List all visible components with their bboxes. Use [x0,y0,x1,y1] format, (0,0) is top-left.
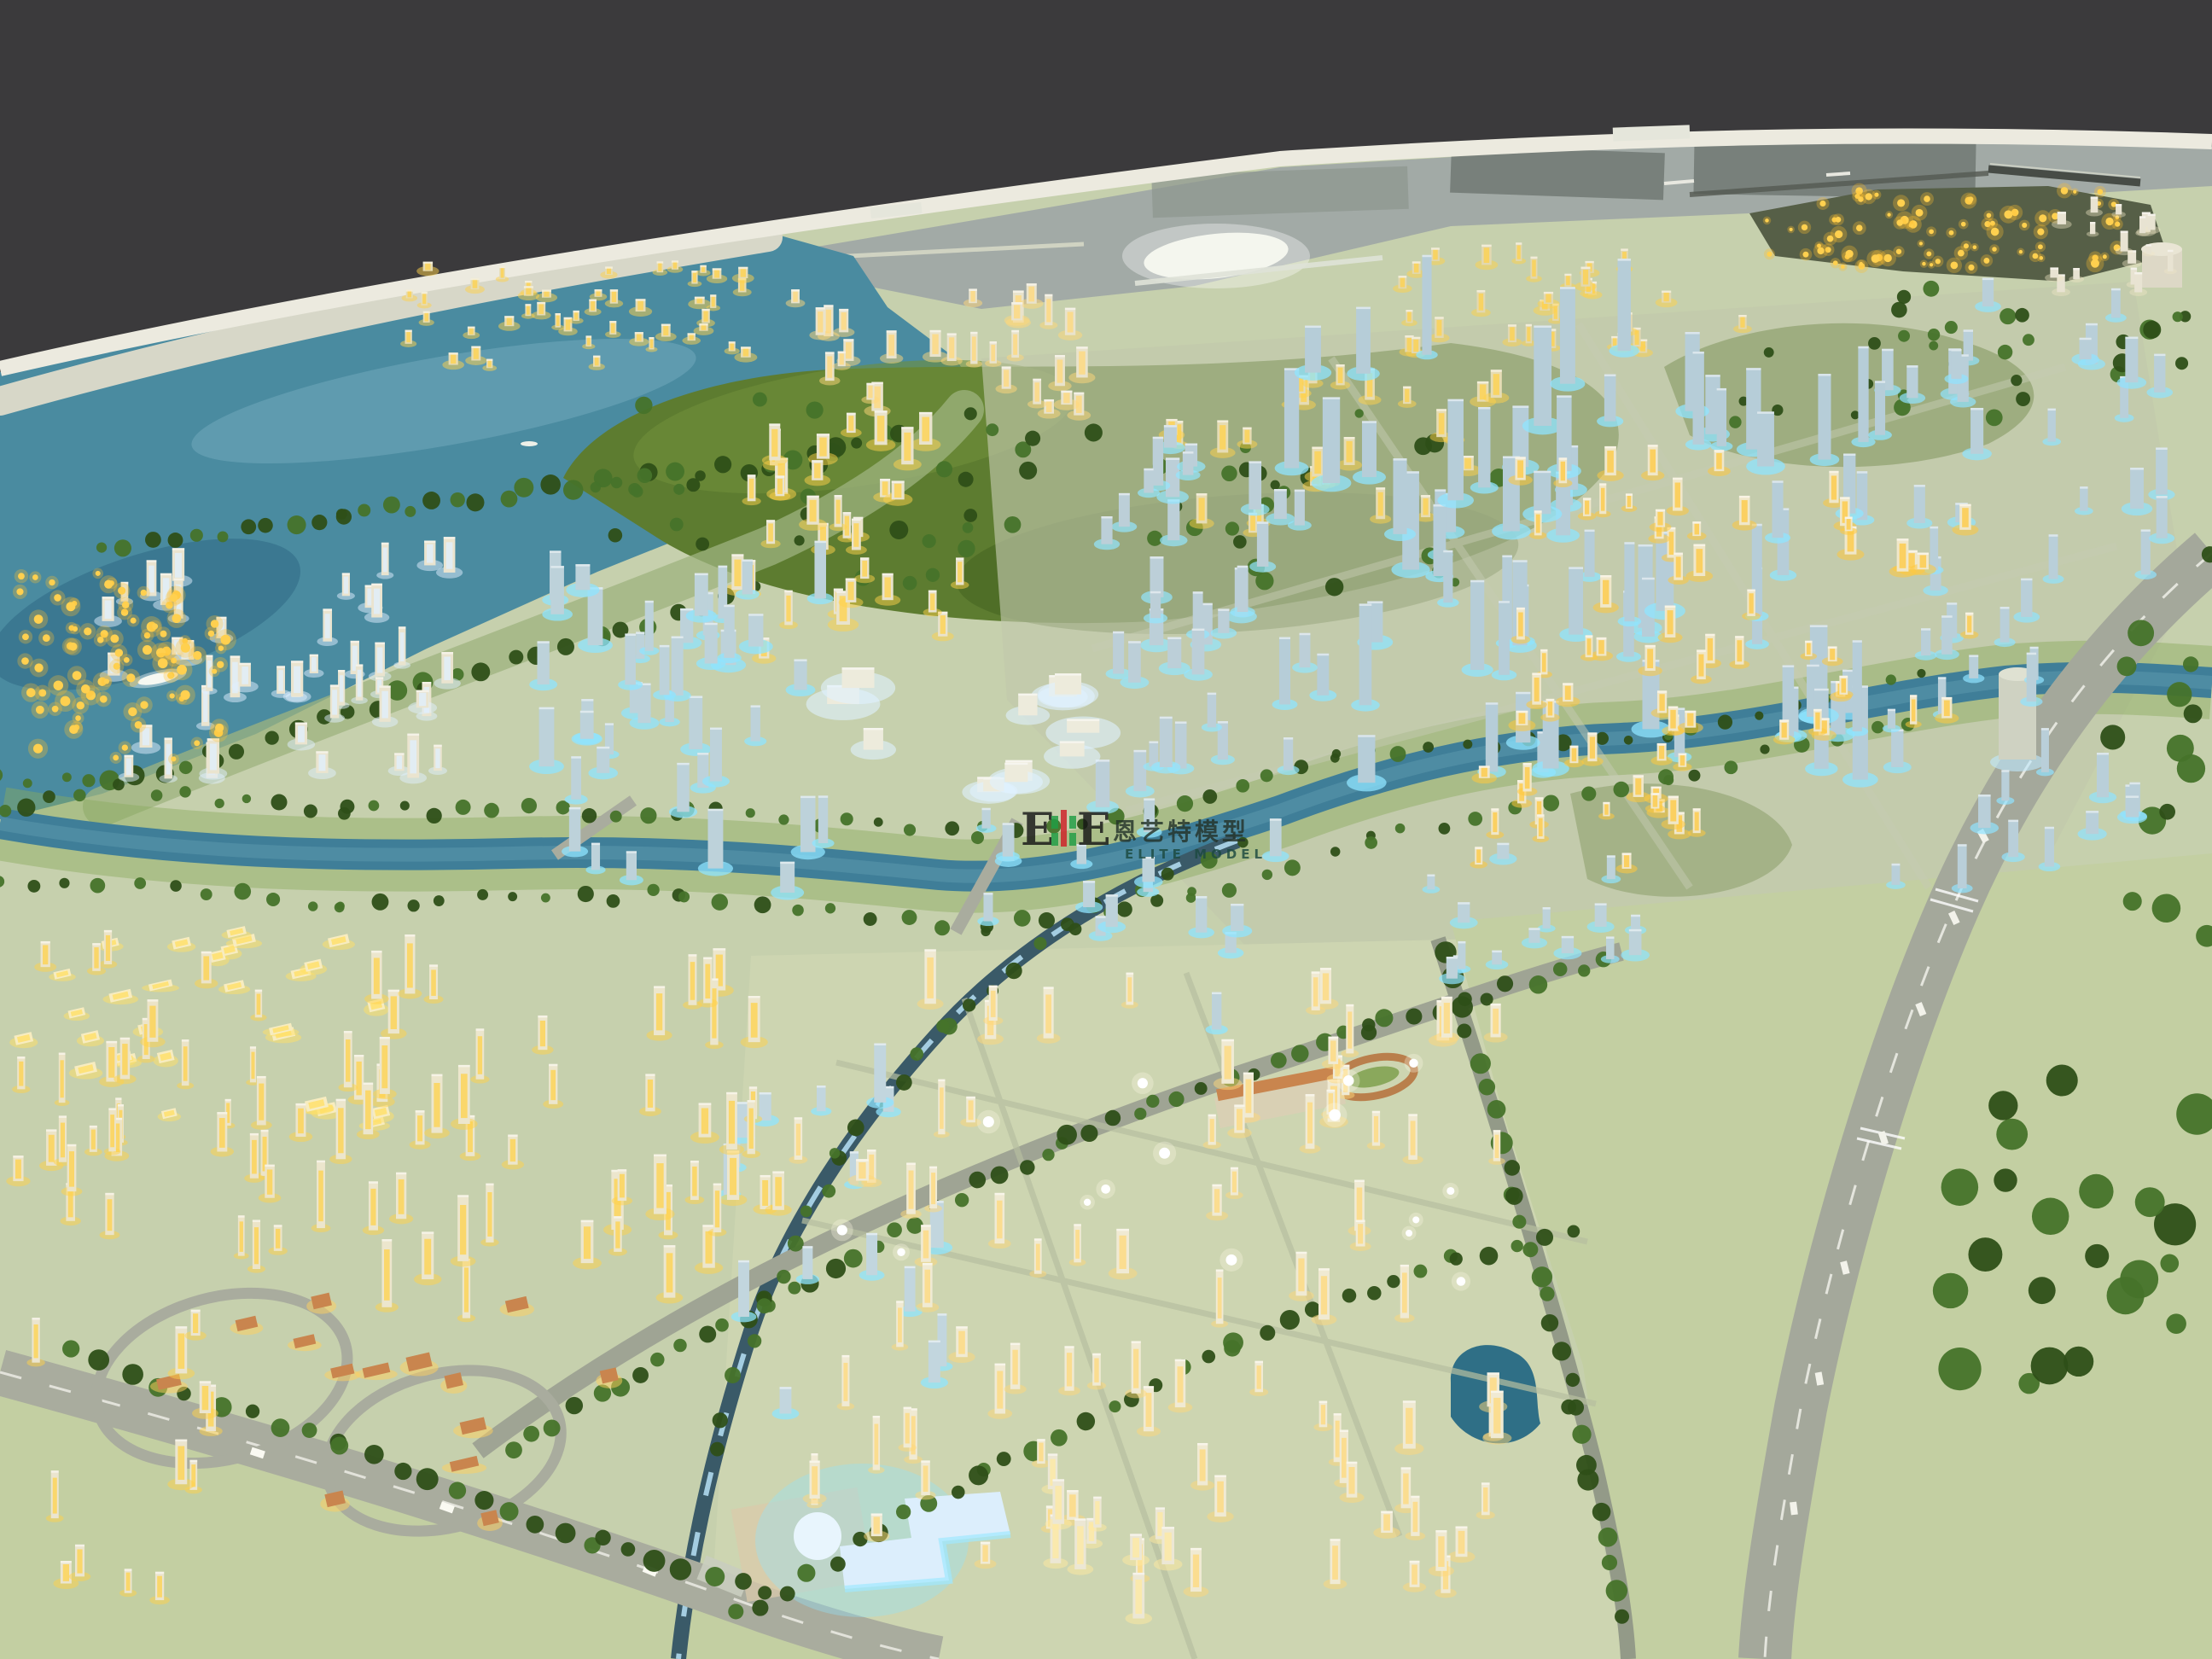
tree-row-tree [1479,1079,1495,1095]
light-dot [1329,1109,1341,1121]
building-roof-edge [2157,496,2168,498]
tree-row-tree [500,1502,519,1521]
building-lit-windows [1604,804,1609,814]
building-roof-edge [1231,1167,1238,1170]
building-lit-windows [1624,855,1629,867]
building-roof-edge [677,763,689,765]
building-roof-edge [1673,478,1682,480]
tree-row-tree [288,515,306,534]
building-roof-edge [689,696,702,698]
building-roof-edge [1421,495,1430,498]
building-roof-edge [1829,471,1838,474]
light-dot [1447,1187,1454,1195]
building-roof-edge [1965,613,1973,615]
light-dot [211,620,219,628]
tree-row-tree [505,1441,522,1458]
building-roof-edge [396,1173,406,1175]
building-lit-windows [461,1074,468,1118]
building-roof-edge [423,262,433,265]
building [842,667,875,688]
building-roof-edge [1320,968,1331,970]
building-roof-edge [806,496,818,498]
light-dot [135,721,143,729]
building-roof-edge [17,1057,25,1059]
tree-row-tree [595,1530,610,1545]
building-roof-edge [1279,637,1290,640]
building-lit-windows [1348,1011,1352,1048]
building-roof-edge [1295,490,1305,492]
tree [632,486,643,498]
tree-row-tree [1395,824,1406,834]
building-lit-windows [1436,320,1441,336]
tree [1891,302,1907,318]
building-roof-edge [1412,337,1420,340]
building-lit-windows [637,334,642,341]
building-roof-edge [1739,496,1750,498]
building-roof-edge [1323,397,1340,399]
building-roof-edge [351,641,359,643]
building-roof-edge [738,267,748,270]
light-dot [160,631,166,637]
building-roof-edge [772,1171,784,1173]
building-lit-windows [344,576,348,593]
tree-row-tree [1005,963,1022,979]
building-lit-windows [970,291,975,302]
tree [926,568,940,582]
building-roof-edge [59,1115,67,1118]
building-roof-edge [1067,719,1099,721]
building-roof-edge [1237,566,1249,568]
building-roof-edge [1212,992,1221,995]
building-roof-edge [1599,483,1606,486]
building-roof-edge [697,753,708,755]
tree [1968,1237,2002,1272]
tree-row-tree [59,878,69,888]
light-dot [1225,1254,1237,1266]
building [982,808,991,829]
building-lit-windows [843,1363,847,1401]
building-roof-edge [1083,881,1095,883]
building-roof-edge [369,1181,378,1184]
tree [2128,620,2154,646]
tree-row-tree [1566,1373,1580,1387]
building-roof-edge [1481,245,1492,247]
building-lit-windows [1094,1358,1098,1382]
building [1631,915,1640,930]
tree-row-tree [991,1167,1009,1185]
building-roof-edge [1544,292,1553,294]
tree-row-tree [670,1558,691,1580]
tree-row-tree [844,1249,863,1268]
building-roof-edge [471,346,480,349]
building-roof-edge [1193,591,1203,594]
building-roof-edge [1354,1180,1365,1183]
building-roof-edge [1243,1073,1254,1075]
tree-row-tree [1871,721,1884,734]
building-lit-windows [796,1124,800,1155]
building-roof-edge [1422,255,1431,258]
tree [1945,321,1958,334]
building [1060,741,1085,756]
light-dot [1991,228,2000,236]
building-roof-edge [1747,590,1755,592]
building-roof-edge [1657,743,1667,746]
tree-row-tree [190,529,203,542]
tree [1928,329,1940,341]
tree [923,534,936,548]
tree [1996,1119,2028,1150]
tree-row-tree [591,482,601,492]
building-roof-edge [802,1246,812,1249]
tree-row-tree [434,895,445,906]
building-roof-edge [1475,847,1482,849]
tree-row-tree [1529,975,1547,993]
building-roof-edge [1155,1507,1165,1510]
tree-row-tree [43,790,55,803]
building-lit-windows [1412,1564,1417,1584]
tree [1221,465,1237,481]
building-roof-edge [860,557,869,560]
building [1629,929,1642,955]
building-roof-edge [1814,689,1829,691]
building-roof-edge [892,480,905,483]
watermark-logo-letter-right: E [1077,804,1111,856]
building [1941,615,1953,655]
building [1257,521,1269,567]
light-dot [18,573,25,579]
building-roof-edge [749,1086,757,1089]
building [710,728,722,782]
building-roof-edge [380,1037,390,1039]
building-roof-edge [160,573,172,576]
building-roof-edge [1982,278,1994,281]
tree-row-tree [242,795,251,803]
building-lit-windows [374,589,380,614]
tree-row-tree [777,1270,790,1284]
tree-row-tree [1390,746,1406,762]
light-dot [34,614,44,624]
building-roof-edge [1344,437,1355,439]
building-lit-windows [325,614,330,638]
building-roof-edge [1011,330,1019,333]
building-roof-edge [1458,902,1470,905]
building-roof-edge [59,1053,66,1056]
building-roof-edge [1318,1268,1330,1271]
building-lit-windows [1120,1236,1126,1269]
building-lit-windows [1220,425,1225,449]
building-lit-windows [1742,500,1748,522]
building-lit-windows [49,1135,55,1162]
light-dot [2091,259,2099,268]
building-roof-edge [1326,1090,1335,1092]
building-roof-edge [1526,324,1532,327]
building-lit-windows [1057,359,1063,382]
building-roof-edge [1651,787,1662,789]
building-lit-windows [149,1006,155,1038]
watermark-english-text: ELITE MODEL [1125,847,1266,862]
building-roof-edge [710,728,722,731]
building-roof-edge [1818,374,1831,376]
building-lit-windows [1479,294,1484,311]
building-lit-windows [33,1324,38,1358]
building-lit-windows [377,648,382,673]
building-lit-windows [1012,1350,1017,1385]
tree [2135,1187,2165,1217]
building [705,623,718,664]
light-dot [21,657,29,665]
building-lit-windows [203,691,207,722]
building-roof-edge [800,796,815,799]
building-roof-edge [664,1245,676,1248]
building-roof-edge [1328,1037,1338,1039]
building [1853,640,1862,731]
building-lit-windows [61,1123,65,1158]
building-roof-edge [1153,437,1163,439]
building-roof-edge [1034,1238,1042,1241]
building-roof-edge [1964,329,1973,332]
building-lit-windows [1135,1580,1142,1614]
building-roof-edge [713,1184,721,1186]
building-roof-edge [1858,346,1868,349]
building [1192,629,1205,675]
building-roof-edge [2141,529,2151,532]
building-lit-windows [1407,338,1412,351]
building-roof-edge [1491,1004,1501,1006]
building-roof-edge [46,1129,56,1132]
building-roof-edge [1491,370,1502,372]
tree-row-tree [788,1236,804,1252]
building-lit-windows [771,429,777,457]
building-roof-edge [1853,640,1862,643]
building-roof-edge [1897,538,1909,541]
building-roof-edge [291,661,303,663]
building-lit-windows [786,596,790,622]
building [1237,566,1249,612]
building-roof-edge [1458,941,1465,944]
tree-row-tree [800,1206,812,1218]
building-roof-edge [1305,326,1321,329]
building-lit-windows [810,500,817,522]
tree-row-tree [735,1573,752,1590]
building-roof-edge [1243,428,1251,430]
building-lit-windows [424,313,428,322]
mall-drum [794,1512,841,1560]
tree-row-tree [710,1442,725,1457]
building-roof-edge [635,332,643,335]
tree [2120,1260,2158,1299]
building-roof-edge [1197,1443,1208,1446]
building-lit-windows [874,1424,878,1465]
building-lit-windows [340,675,344,701]
building-roof-edge [125,1569,132,1571]
building-lit-windows [1346,441,1352,463]
tree-row-tree [179,761,192,774]
building-lit-windows [1493,1398,1500,1434]
building [1604,375,1616,422]
building-lit-windows [183,1046,188,1081]
tree-row-tree [1598,1528,1618,1547]
building-roof-edge [2131,268,2138,271]
building-lit-windows [1664,293,1669,302]
building-lit-windows [1218,1278,1222,1318]
building-lit-windows [1127,977,1132,1001]
building [1888,709,1895,729]
building [2097,753,2109,797]
tree-row-tree [23,778,32,788]
building-roof-edge [371,584,382,586]
building [2157,496,2168,538]
tree-row-tree [82,774,95,787]
tree-row-tree [62,772,72,782]
building-roof-edge [1116,1229,1129,1231]
building-roof-edge [253,1220,260,1222]
building-lit-windows [1698,655,1703,677]
building-roof-edge [2097,753,2109,755]
tree-row-tree [541,894,550,903]
building-roof-edge [814,541,826,544]
building-roof-edge [1586,635,1593,637]
building-roof-edge [1958,844,1967,847]
tree-row-tree [1168,1091,1184,1107]
tree [2016,392,2030,406]
tree-row-tree [27,880,40,893]
building-roof-edge [1714,450,1725,452]
light-dot [1101,1185,1110,1194]
building-lit-windows [400,632,405,661]
building [738,1260,749,1317]
tree-row-tree [1568,1400,1584,1416]
building-lit-windows [793,292,798,302]
building [1279,637,1290,705]
building [580,711,594,739]
building-roof-edge [1585,261,1593,264]
building-roof-edge [654,1155,667,1157]
building-roof-edge [904,1407,911,1410]
building-roof-edge [1447,399,1464,402]
building-roof-edge [591,843,600,846]
building-lit-windows [383,548,387,573]
tree-row-tree [1613,782,1629,798]
light-dot [171,756,176,761]
light-dot [126,673,135,682]
building-lit-windows [469,328,474,335]
building-roof-edge [705,623,718,626]
building [1218,608,1229,632]
building-roof-edge [1336,364,1344,367]
building-roof-edge [981,1542,990,1545]
light-dot [1860,262,1863,265]
building-roof-edge [2000,607,2010,609]
building-roof-edge [1074,1518,1086,1521]
building-lit-windows [692,1167,697,1196]
tree-row-tree [1134,1108,1146,1120]
tree-row-tree [73,789,86,802]
building [1323,397,1340,483]
tree-row-tree [955,1193,969,1207]
tree-row-tree [778,814,789,824]
building-roof-edge [1092,1353,1101,1356]
building-roof-edge [175,1440,187,1442]
light-dot [16,588,23,595]
building-lit-windows [931,1173,935,1204]
building-lit-windows [706,1231,713,1264]
tree-row-tree [544,1420,561,1437]
building-roof-edge [636,632,644,634]
light-dot [181,690,190,700]
tree-row-tree [566,1397,583,1414]
building-lit-windows [178,1333,184,1368]
building-lit-windows [407,943,413,987]
building-roof-edge [812,460,823,463]
building-lit-windows [1495,1135,1499,1158]
light-dot [1922,262,1925,265]
building [760,1092,771,1121]
light-dot [1968,196,1973,201]
building-roof-edge [825,352,835,354]
building-roof-edge [1779,719,1789,722]
building-roof-edge [1270,818,1282,821]
building-roof-edge [388,990,399,992]
building-roof-edge [1144,1386,1154,1388]
building-lit-windows [730,343,733,350]
building [2134,272,2142,293]
building-lit-windows [1200,1449,1206,1481]
light-dot [66,602,75,611]
tree-row-tree [122,1364,143,1385]
tree-row-tree [1195,1082,1208,1095]
building-lit-windows [1493,374,1499,395]
tree-row-tree [145,532,161,548]
tree-row-tree [1361,1025,1377,1040]
building [1534,325,1551,426]
logo-green-bar [1051,833,1058,846]
tree-row-tree [17,799,35,817]
building [2045,827,2054,867]
building-lit-windows [927,958,934,998]
building [1133,750,1146,791]
building-roof-edge [51,1470,59,1473]
building-roof-edge [458,1065,470,1068]
building-lit-windows [749,1109,754,1149]
tree [1988,1091,2017,1120]
building-lit-windows [434,1083,439,1127]
building-lit-windows [267,1169,272,1194]
building-lit-windows [175,553,182,578]
building-roof-edge [1208,693,1216,696]
building [1249,461,1261,509]
logo-green-bar [1069,833,1076,846]
building-roof-edge [1668,707,1678,709]
building [1128,641,1141,682]
building-lit-windows [1321,1276,1327,1314]
building-lit-windows [1321,1405,1325,1424]
building-lit-windows [1193,1555,1199,1587]
tree-row-tree [271,794,287,810]
building-roof-edge [1010,1343,1020,1346]
tree-row-tree [258,518,273,533]
tree-row-tree [1497,975,1513,992]
building-lit-windows [1046,299,1051,322]
tree-row-tree [1512,1215,1526,1229]
building-roof-edge [1064,1346,1074,1348]
building-roof-edge [416,690,429,693]
tree-row-tree [699,1325,716,1342]
building-lit-windows [332,690,337,714]
building-roof-edge [90,1126,97,1128]
building [591,843,600,870]
tree-row-tree [304,804,317,818]
tree-row-tree [1423,742,1434,753]
